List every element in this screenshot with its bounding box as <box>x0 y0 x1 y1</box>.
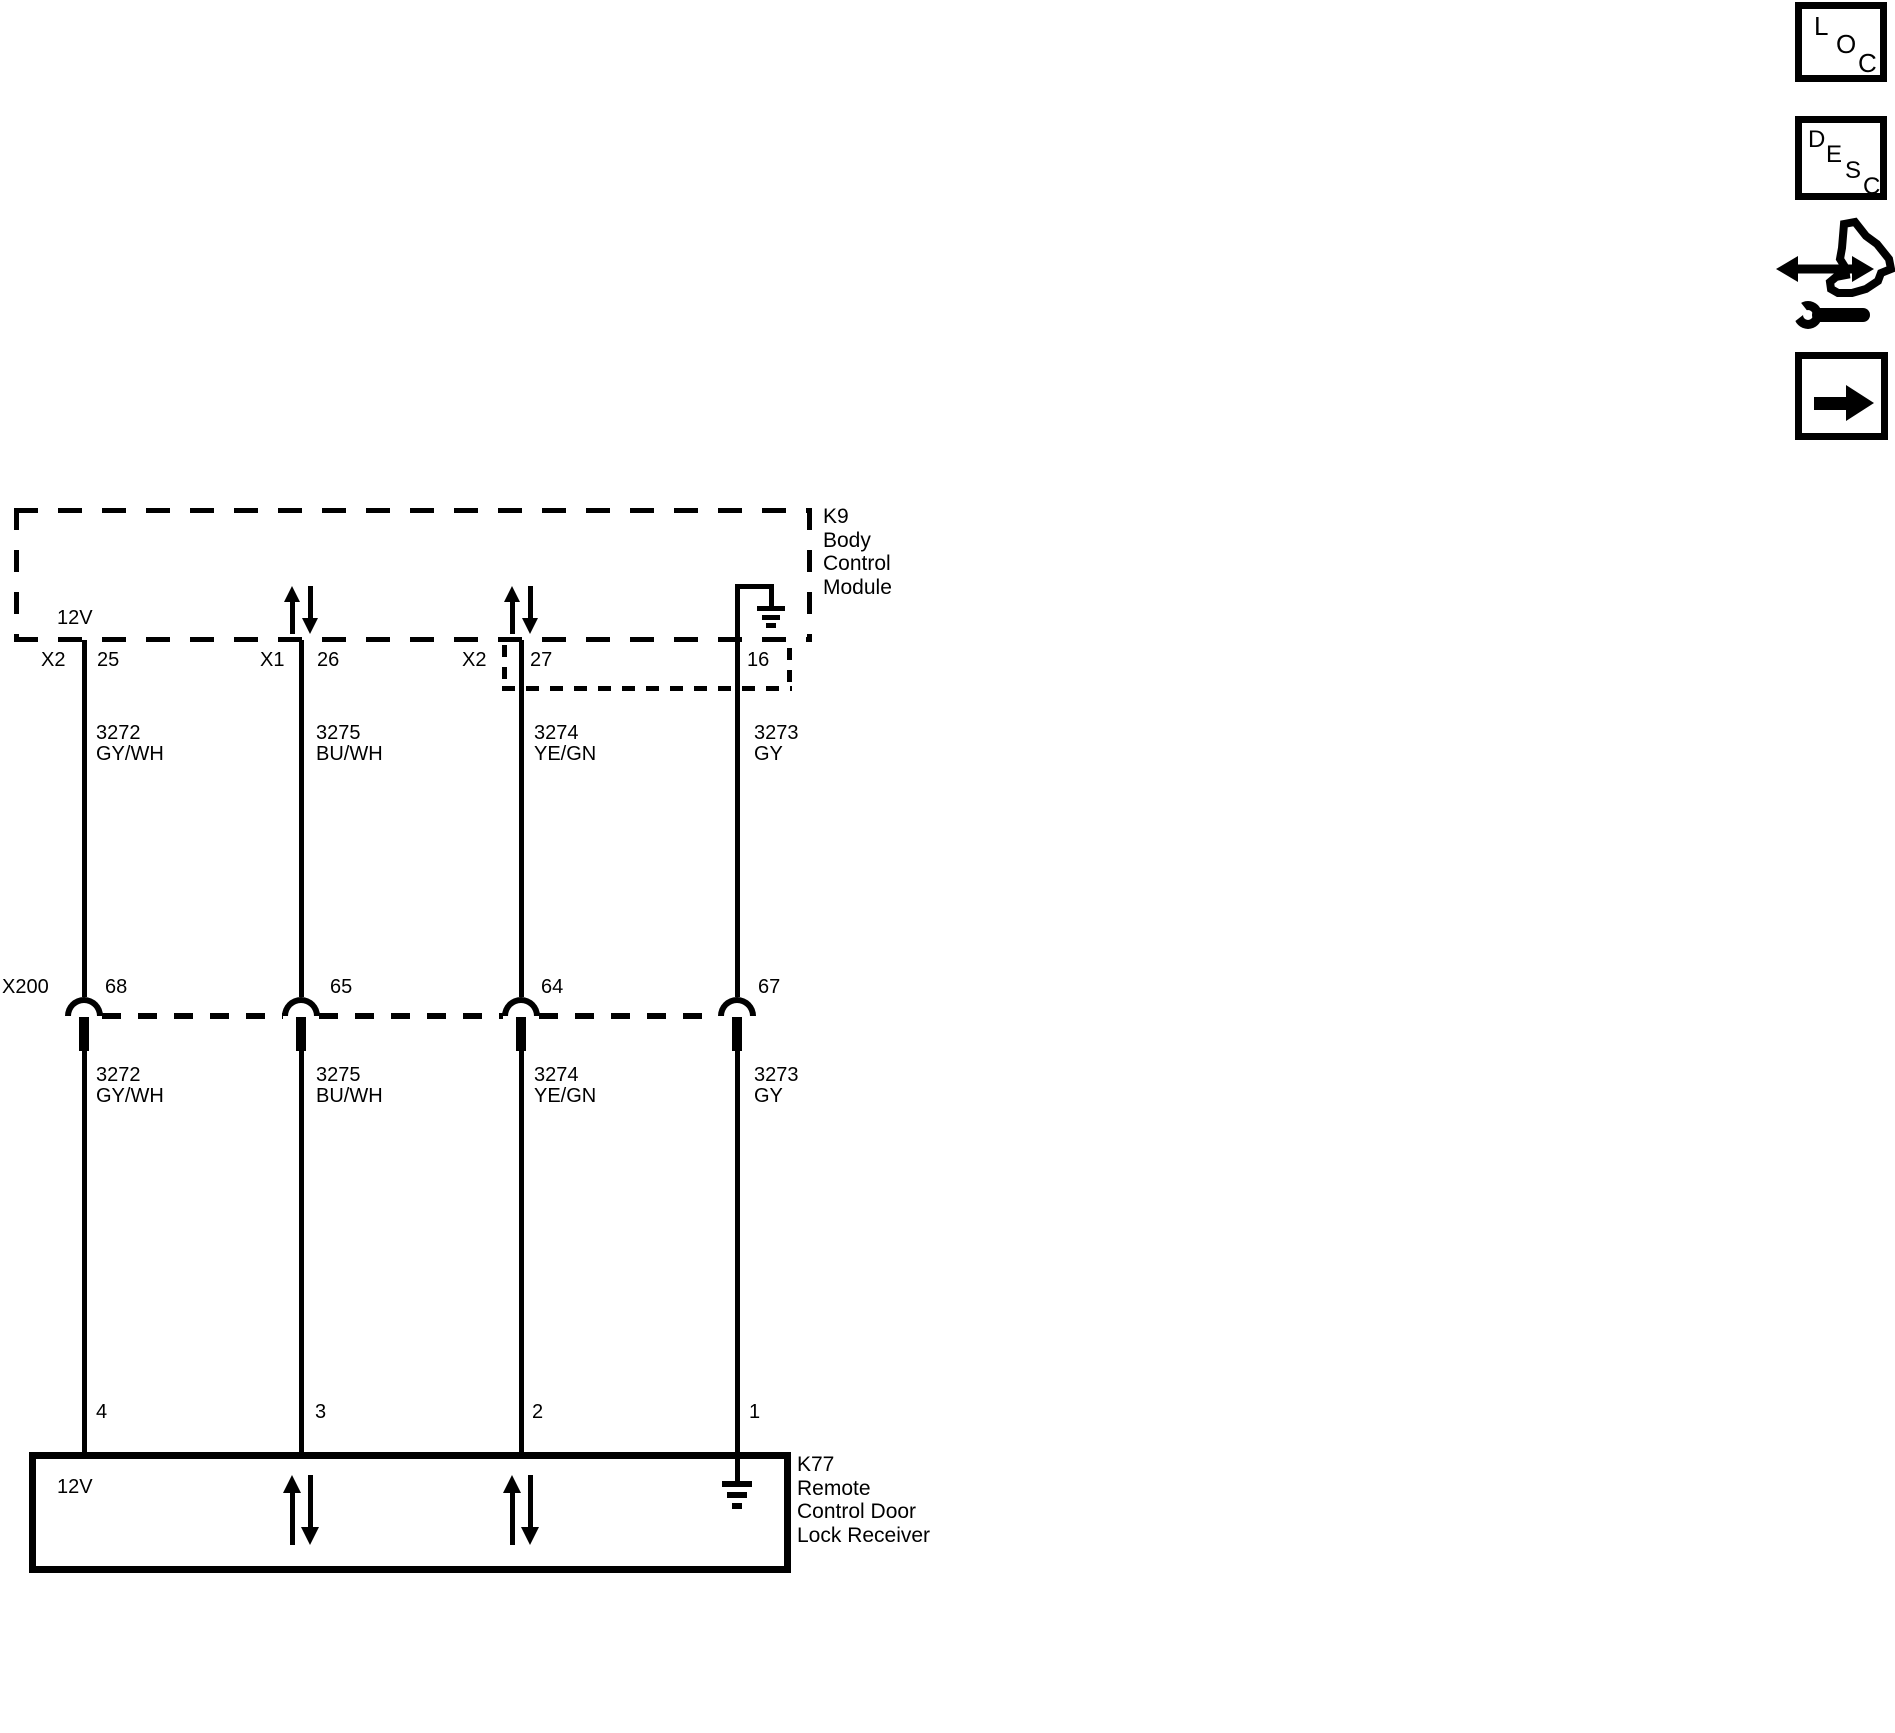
bcm-connector-label: X2 <box>462 650 486 671</box>
wire-label: 3272GY/WH <box>96 1065 164 1107</box>
receiver-pin-label: 4 <box>96 1402 107 1423</box>
bcm-connector-label: X1 <box>260 650 284 671</box>
desc-letter-e: E <box>1826 141 1842 169</box>
wire-3275-upper <box>299 640 304 997</box>
desc-letter-c: C <box>1863 173 1880 201</box>
wire-3272-lower <box>82 1017 87 1455</box>
receiver-pin-label: 3 <box>315 1402 326 1423</box>
loc-nav-button[interactable]: L O C <box>1795 2 1887 82</box>
wire-label: 3273GY <box>754 1065 799 1107</box>
wire-3275-lower <box>299 1017 304 1455</box>
bcm-box-top-edge <box>14 508 812 513</box>
bcm-pin-label: 16 <box>747 650 769 671</box>
inline-connector-pin: 64 <box>541 977 563 998</box>
loc-letter-c: C <box>1858 48 1877 79</box>
desc-letter-d: D <box>1808 126 1825 154</box>
bcm-pin-label: 27 <box>530 650 552 671</box>
wire-3273-upper <box>735 584 740 997</box>
inline-connector-line <box>319 1013 503 1019</box>
bcm-box-left-edge <box>14 508 19 642</box>
receiver-label: K77 Remote Control Door Lock Receiver <box>797 1453 930 1547</box>
bcm-pin-label: 26 <box>317 650 339 671</box>
bcm-pin-label: 25 <box>97 650 119 671</box>
receiver-box <box>29 1452 791 1573</box>
receiver-pin-label: 2 <box>532 1402 543 1423</box>
inline-connector-terminal-icon <box>65 997 103 1016</box>
bcm-supply-label: 12V <box>57 608 93 629</box>
inline-connector-line <box>539 1013 719 1019</box>
desc-letter-s: S <box>1845 157 1861 185</box>
receiver-supply-label: 12V <box>57 1477 93 1498</box>
wire-label: 3274YE/GN <box>534 1065 596 1107</box>
wiring-diagram-page: { "nav": { "loc_letters": ["L", "O", "C"… <box>0 0 1895 1733</box>
wire-label: 3272GY/WH <box>96 723 164 765</box>
wire-label: 3275BU/WH <box>316 723 383 765</box>
inline-connector-label: X200 <box>2 977 49 998</box>
receiver-pin-label: 1 <box>749 1402 760 1423</box>
inline-connector-pin: 65 <box>330 977 352 998</box>
bcm-connector-label: X2 <box>41 650 65 671</box>
wire-label: 3274YE/GN <box>534 723 596 765</box>
bcm-box-right-edge <box>807 508 812 642</box>
wire-label: 3275BU/WH <box>316 1065 383 1107</box>
wire-3272-upper <box>82 640 87 997</box>
wire-3274-lower <box>519 1017 524 1455</box>
inline-connector-terminal-icon <box>502 997 540 1016</box>
loc-letter-o: O <box>1836 29 1856 60</box>
bcm-box-bottom-edge <box>14 637 812 642</box>
inline-connector-terminal-icon <box>718 997 756 1016</box>
inline-connector-pin: 68 <box>105 977 127 998</box>
inline-connector-line <box>102 1013 283 1019</box>
inline-connector-terminal-icon <box>282 997 320 1016</box>
wire-label: 3273GY <box>754 723 799 765</box>
bcm-label: K9 Body Control Module <box>823 505 892 599</box>
desc-nav-button[interactable]: D E S C <box>1795 116 1887 200</box>
loc-letter-l: L <box>1814 11 1828 42</box>
repair-wrench-icon[interactable] <box>1768 212 1895 342</box>
wire-3274-upper <box>519 640 524 997</box>
forward-arrow-button[interactable] <box>1795 352 1888 440</box>
inline-connector-pin: 67 <box>758 977 780 998</box>
wire-3273-lower <box>735 1017 740 1455</box>
